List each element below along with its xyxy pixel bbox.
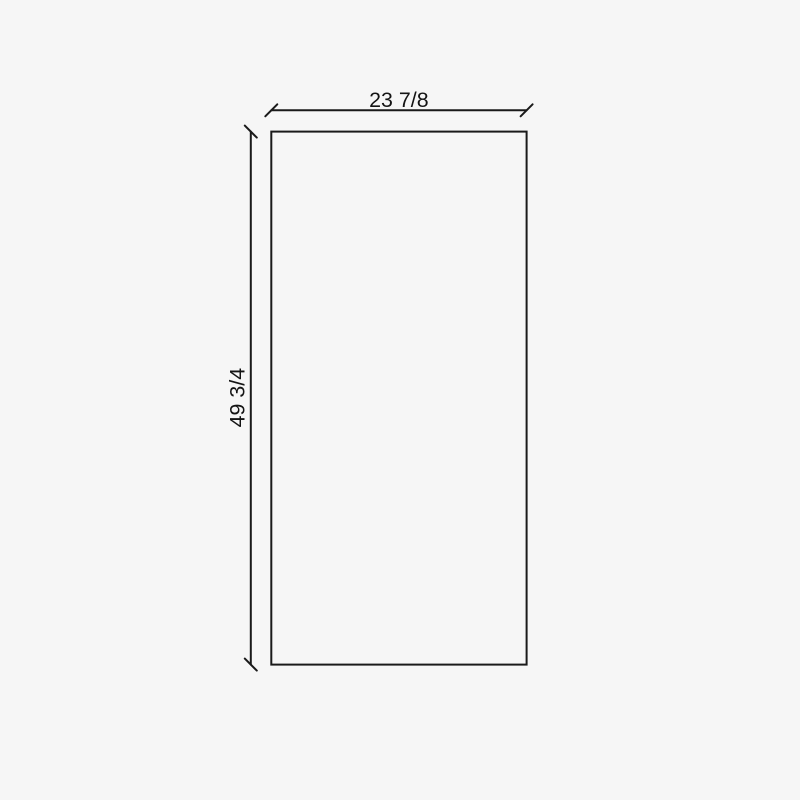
- svg-text:49 3/4: 49 3/4: [226, 368, 250, 428]
- svg-text:23 7/8: 23 7/8: [369, 88, 428, 112]
